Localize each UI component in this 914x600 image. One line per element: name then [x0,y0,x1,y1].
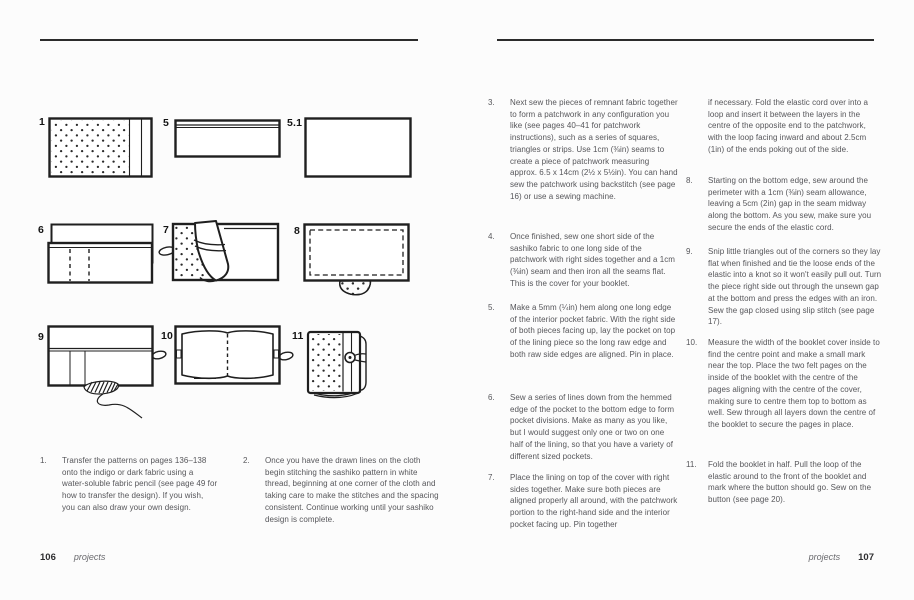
step-5-number: 5. [488,302,495,314]
step-3-number: 3. [488,97,495,109]
step-10: 10. Measure the width of the booklet cov… [686,337,882,431]
step-6-number: 6. [488,392,495,404]
diagram-label-6: 6 [38,224,44,236]
step-4: 4. Once finished, sew one short side of … [488,231,678,290]
step-2-number: 2. [243,455,250,467]
diagram-5-hemmed-pocket [174,119,282,159]
step-5: 5. Make a 5mm (¼in) hem along one long e… [488,302,678,361]
header-rule-left [40,39,418,41]
diagram-label-8: 8 [294,225,300,237]
step-11-number: 11. [686,459,697,471]
header-rule-right [497,39,874,41]
diagram-1-sashiko-fabric [48,117,156,181]
diagram-9-slip-stitch-gap [47,325,175,421]
step-8-number: 8. [686,175,693,187]
step-8: 8. Starting on the bottom edge, sew arou… [686,175,882,234]
step-11: 11. Fold the booklet in half. Pull the l… [686,459,882,506]
footer-left: 106projects [40,552,105,563]
step-6-text: Sew a series of lines down from the hemm… [510,392,678,462]
step-1-number: 1. [40,455,47,467]
diagram-8-sewn-perimeter-gap [303,223,413,295]
step-7-continuation-text: if necessary. Fold the elastic cord over… [708,97,882,156]
diagram-5-1-lining [304,117,413,179]
book-spread: 1 5 5.1 6 7 8 9 10 11 [0,0,914,600]
step-9-text: Snip little triangles out of the corners… [708,246,882,328]
step-2: 2. Once you have the drawn lines on the … [243,455,441,525]
step-5-text: Make a 5mm (¼in) hem along one long edge… [510,302,678,361]
section-label-right: projects [809,552,841,562]
step-7-continuation: if necessary. Fold the elastic cord over… [686,97,882,156]
step-6: 6. Sew a series of lines down from the h… [488,392,678,462]
section-label-left: projects [74,552,106,562]
step-4-text: Once finished, sew one short side of the… [510,231,678,290]
step-7: 7. Place the lining on top of the cover … [488,472,678,531]
step-11-text: Fold the booklet in half. Pull the loop … [708,459,882,506]
step-10-number: 10. [686,337,697,349]
diagram-6-pocket-divisions [47,223,157,285]
step-8-text: Starting on the bottom edge, sew around … [708,175,882,234]
diagram-label-5: 5 [163,117,169,129]
page-number-right: 107 [858,552,874,563]
diagram-11-finished-booklet [300,326,392,400]
step-3-text: Next sew the pieces of remnant fabric to… [510,97,678,202]
step-4-number: 4. [488,231,495,243]
page-number-left: 106 [40,552,56,563]
step-7-number: 7. [488,472,495,484]
step-3: 3. Next sew the pieces of remnant fabric… [488,97,678,202]
step-9: 9. Snip little triangles out of the corn… [686,246,882,328]
diagram-label-9: 9 [38,331,44,343]
diagram-label-5-1: 5.1 [287,117,302,129]
footer-right: projects107 [809,552,874,563]
step-1: 1. Transfer the patterns on pages 136–13… [40,455,218,514]
step-10-text: Measure the width of the booklet cover i… [708,337,882,431]
step-2-text: Once you have the drawn lines on the clo… [265,455,441,525]
step-1-text: Transfer the patterns on pages 136–138 o… [62,455,218,514]
diagram-label-1: 1 [39,116,45,128]
diagram-7-lining-folded-elastic [158,220,284,286]
step-7-text: Place the lining on top of the cover wit… [510,472,678,531]
diagram-10-felt-pages-centre [174,325,296,387]
step-9-number: 9. [686,246,693,258]
